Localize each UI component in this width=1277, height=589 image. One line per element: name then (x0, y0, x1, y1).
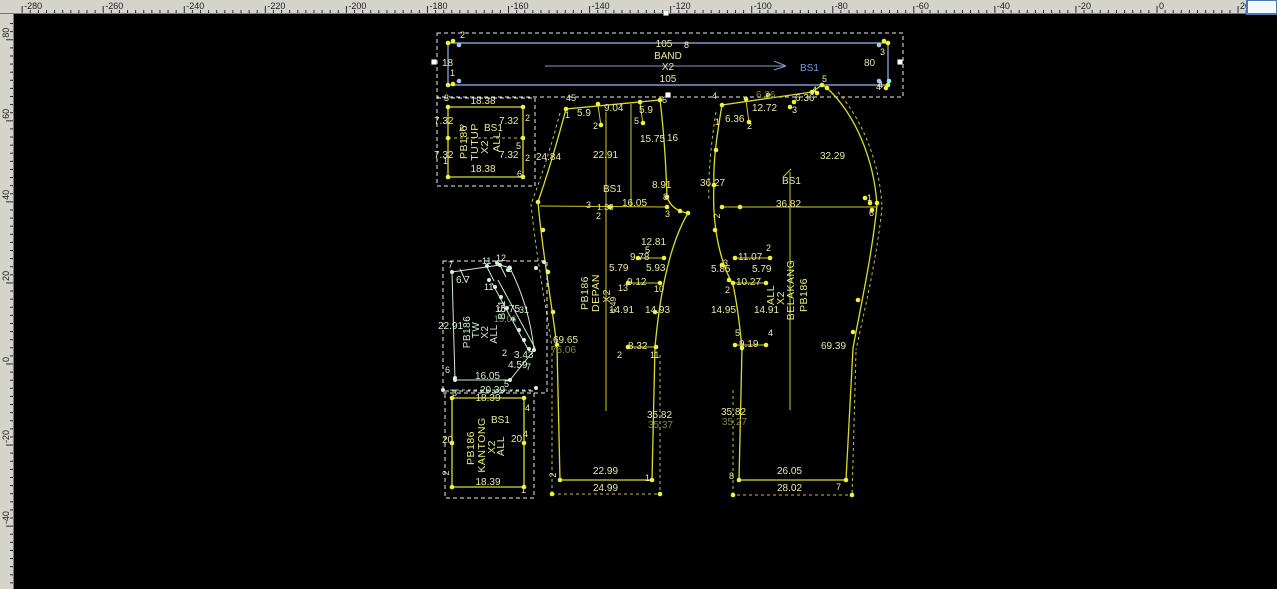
pattern-point[interactable] (733, 343, 738, 348)
pattern-point[interactable] (720, 205, 725, 210)
pattern-point[interactable] (446, 41, 451, 46)
pattern-point[interactable] (844, 478, 849, 483)
pattern-point[interactable] (457, 43, 462, 48)
pattern-point[interactable] (522, 396, 527, 401)
measurement-label: 8.32 (628, 341, 648, 352)
top-ruler-label: -160 (511, 1, 529, 11)
pattern-point[interactable] (654, 345, 659, 350)
measurement-label: 18.39 (475, 477, 500, 488)
top-ruler-label: -20 (1078, 1, 1091, 11)
pattern-point[interactable] (450, 270, 454, 274)
point-label: 2 (525, 113, 530, 123)
point-label: 6 (517, 169, 522, 179)
point-label: 4 (768, 328, 773, 338)
left-ruler-label: 40 (1, 190, 11, 200)
point-label: 8 (684, 40, 689, 50)
top-ruler-label: -260 (105, 1, 123, 11)
pattern-point[interactable] (727, 278, 732, 283)
top-ruler-label: -240 (186, 1, 204, 11)
point-label: 3 (586, 200, 591, 210)
point-label: 1 (521, 485, 526, 495)
pattern-point[interactable] (521, 136, 526, 141)
pattern-point[interactable] (638, 100, 643, 105)
measurement-label: BAND (654, 51, 682, 62)
top-ruler-label: -60 (916, 1, 929, 11)
top-ruler-label: -40 (997, 1, 1010, 11)
point-label: 4 (712, 91, 717, 101)
pattern-point[interactable] (541, 228, 546, 233)
left-ruler-label: 0 (1, 357, 11, 362)
top-ruler-label: 0 (1159, 1, 1164, 11)
pattern-point[interactable] (542, 260, 546, 264)
point-label: 3 (792, 105, 797, 115)
measurement-label: 5.79 (609, 263, 629, 274)
pattern-point[interactable] (678, 209, 683, 214)
pattern-point[interactable] (662, 256, 667, 261)
point-label: 4 (878, 80, 883, 90)
point-label: 2 (525, 153, 530, 163)
pattern-point[interactable] (451, 82, 456, 87)
point-label: 1 (715, 117, 720, 127)
left-ruler-label: -20 (1, 430, 11, 443)
measurement-label: 18.38 (470, 164, 495, 175)
pattern-point[interactable] (522, 338, 526, 342)
pattern-point[interactable] (887, 79, 892, 84)
measurement-label: 9.04 (604, 103, 624, 114)
measurement-label: 26.05 (777, 466, 802, 477)
pattern-point[interactable] (517, 328, 521, 332)
pattern-point[interactable] (446, 136, 451, 141)
measurement-label: 22.99 (593, 466, 618, 477)
pattern-point[interactable] (850, 493, 855, 498)
measurement-label: 28.02 (777, 483, 802, 494)
pattern-point[interactable] (764, 343, 769, 348)
top-ruler-label: -100 (754, 1, 772, 11)
point-label: 13 (618, 283, 628, 293)
piece-name-label: BELAKANG (785, 260, 797, 321)
top-ruler-label: -140 (592, 1, 610, 11)
point-label: 3 (880, 47, 885, 57)
pattern-point[interactable] (764, 281, 769, 286)
point-label: 1 (867, 193, 872, 203)
measurement-label: 80 (864, 58, 876, 69)
selection-handle[interactable] (666, 93, 671, 98)
measurement-label: 5.79 (752, 264, 772, 275)
point-label: 2 (712, 213, 722, 218)
pattern-point[interactable] (731, 493, 736, 498)
pattern-point[interactable] (546, 270, 551, 275)
point-label: 8 (729, 471, 734, 481)
point-label: 2 (617, 350, 622, 360)
top-ruler-label: -120 (673, 1, 691, 11)
measurement-label: 11.07 (738, 252, 763, 263)
measurement-label: BS1 (603, 184, 622, 195)
pattern-point[interactable] (441, 388, 445, 392)
pattern-point[interactable] (882, 39, 887, 44)
top-ruler-label: -180 (429, 1, 447, 11)
point-label: 3 (452, 388, 457, 398)
left-ruler-label: -40 (1, 511, 11, 524)
measurement-label: 4.59 (508, 360, 528, 371)
pattern-point[interactable] (884, 86, 889, 91)
measurement-label: 16 (667, 133, 679, 144)
measurement-label: 9.78 (630, 252, 650, 263)
measurement-label: 22.91 (438, 321, 463, 332)
point-label: 1 (645, 473, 650, 483)
point-label: 8 (663, 192, 668, 202)
pattern-point[interactable] (768, 256, 773, 261)
pattern-point[interactable] (733, 256, 738, 261)
measurement-label: 14.93 (645, 305, 670, 316)
pattern-point[interactable] (856, 298, 861, 303)
pattern-point[interactable] (658, 492, 663, 497)
measurement-label: 9.19 (739, 339, 759, 350)
measurement-label: 8.91 (652, 180, 672, 191)
measurement-label: 16.05 (475, 371, 500, 382)
pattern-point[interactable] (446, 105, 451, 110)
pattern-point[interactable] (686, 211, 691, 216)
measurement-label: 15.75 (640, 134, 665, 145)
measurement-label: BS1 (491, 415, 510, 426)
pattern-point[interactable] (713, 228, 718, 233)
point-label: 2 (593, 121, 598, 131)
measurement-label: 6.36 (725, 114, 745, 125)
point-label: 2 (747, 121, 752, 131)
left-ruler-label: 20 (1, 271, 11, 281)
point-label: 10 (654, 284, 664, 294)
measurement-label: 36.27 (700, 178, 725, 189)
point-label: 2 (507, 264, 512, 274)
piece-name-label: X2 (601, 289, 613, 303)
pattern-point[interactable] (446, 83, 451, 88)
point-label: 31 (519, 305, 529, 315)
top-ruler-label: -80 (835, 1, 848, 11)
pattern-point[interactable] (551, 310, 556, 315)
measurement-label: BS1 (497, 300, 508, 319)
pattern-point[interactable] (720, 103, 725, 108)
selection-handle[interactable] (898, 60, 903, 65)
point-label: 6 (445, 365, 450, 375)
point-label: 1 (450, 68, 455, 78)
measurement-label: 105 (660, 74, 677, 85)
point-label: 7 (836, 482, 841, 492)
point-label: 2 (548, 472, 558, 477)
pattern-point[interactable] (851, 330, 856, 335)
measurement-label: 16.05 (622, 198, 647, 209)
pattern-point[interactable] (450, 485, 455, 490)
measurement-label: 14.95 (711, 305, 736, 316)
pattern-point[interactable] (499, 295, 503, 299)
measurement-label: 105 (656, 39, 673, 50)
point-label: 1 (565, 110, 570, 120)
measurement-label: 18.38 (470, 96, 495, 107)
left-ruler-label: 80 (1, 28, 11, 38)
piece-name-label: ALL (765, 285, 777, 305)
measurement-label: 75.06 (551, 345, 576, 356)
pattern-point[interactable] (534, 266, 538, 270)
point-label: 4 (523, 429, 528, 439)
pattern-point[interactable] (558, 478, 563, 483)
measurement-label: BS1 (782, 176, 801, 187)
point-label: 5 (634, 116, 639, 126)
point-label: 7 (448, 260, 453, 270)
piece-name-label: X2 (479, 140, 491, 154)
point-label: 2 (441, 470, 451, 475)
point-label: 3 (665, 209, 670, 219)
measurement-label: 20 (511, 434, 523, 445)
pattern-canvas[interactable]: -280-260-240-220-200-180-160-140-120-100… (0, 0, 1277, 589)
pattern-point[interactable] (875, 201, 880, 206)
measurement-label: 5.85 (711, 264, 731, 275)
piece-name-label: PB186 (798, 278, 810, 312)
pattern-point[interactable] (714, 148, 719, 153)
pattern-point[interactable] (599, 123, 604, 128)
measurement-label: 24.84 (536, 152, 561, 163)
pattern-point[interactable] (534, 386, 538, 390)
measurement-label: X2 (662, 62, 675, 73)
pattern-point[interactable] (738, 205, 743, 210)
pattern-point[interactable] (825, 86, 830, 91)
piece-name-label: ALL (491, 132, 503, 152)
point-label: 6 (869, 208, 874, 218)
point-label: 4 (812, 85, 817, 95)
top-ruler-label: -200 (348, 1, 366, 11)
measurement-label: 22.91 (593, 150, 618, 161)
measurement-label: BS1 (800, 63, 819, 74)
measurement-label: 12.72 (752, 103, 777, 114)
point-label: 7 (526, 362, 531, 372)
pattern-point[interactable] (536, 200, 541, 205)
top-ruler-label: -280 (24, 1, 42, 11)
point-label: 2 (596, 211, 601, 221)
measurement-label: 5.9 (577, 108, 591, 119)
piece-name-label: ALL (489, 324, 500, 343)
pattern-point[interactable] (457, 79, 462, 84)
pattern-point[interactable] (886, 41, 891, 46)
pattern-point[interactable] (650, 478, 655, 483)
pattern-point[interactable] (521, 105, 526, 110)
piece-name-label: ALL (495, 436, 507, 456)
pattern-point[interactable] (641, 121, 646, 126)
pattern-point[interactable] (731, 281, 736, 286)
pattern-point[interactable] (446, 175, 451, 180)
pattern-point[interactable] (493, 285, 497, 289)
point-label: 2 (460, 30, 465, 40)
top-ruler-label: -220 (267, 1, 285, 11)
point-label: 2 (766, 243, 771, 253)
point-label: 4 (525, 403, 530, 413)
measurement-label: 20 (442, 435, 454, 446)
point-label: 11 (650, 350, 659, 360)
point-label: 11 (484, 282, 493, 292)
point-label: 5 (822, 74, 827, 84)
measurement-label: 10.27 (736, 277, 761, 288)
point-label: 12 (496, 253, 506, 263)
left-ruler-label: 60 (1, 109, 11, 119)
measurement-label: 14.91 (754, 305, 779, 316)
measurement-label: 69.39 (821, 341, 846, 352)
point-label: 45 (566, 93, 576, 103)
measurement-label: 32.29 (820, 151, 845, 162)
measurement-label: 6.36 (756, 90, 776, 101)
measurement-label: 14.91 (609, 305, 634, 316)
measurement-label: 35.27 (722, 417, 747, 428)
measurement-label: 7.32 (434, 116, 454, 127)
measurement-label: 18.39 (475, 393, 500, 404)
measurement-label: 9.12 (627, 277, 647, 288)
selection-handle[interactable] (432, 60, 437, 65)
measurement-label: 5.9 (639, 105, 653, 116)
pattern-point[interactable] (451, 39, 456, 44)
pattern-point[interactable] (737, 478, 742, 483)
pattern-point[interactable] (522, 441, 527, 446)
selection-handle[interactable] (664, 11, 669, 16)
point-label: 1 (443, 156, 448, 166)
measurement-label: 36.82 (776, 199, 801, 210)
point-label: 5 (735, 328, 740, 338)
measurement-label: 35.37 (648, 420, 673, 431)
point-label: 2 (725, 285, 730, 295)
corner-widget[interactable] (1247, 0, 1277, 14)
measurement-label: 24.99 (593, 483, 618, 494)
point-label: 11 (482, 256, 491, 266)
point-label: 2 (502, 348, 507, 358)
pattern-cad-screen: -280-260-240-220-200-180-160-140-120-100… (0, 0, 1277, 589)
pattern-point[interactable] (550, 492, 555, 497)
point-label: 3 (444, 93, 449, 103)
measurement-label: 5.93 (646, 263, 666, 274)
pattern-point[interactable] (453, 376, 457, 380)
pattern-point[interactable] (744, 97, 749, 102)
measurement-label: 6.7 (456, 275, 470, 286)
pattern-point[interactable] (596, 102, 601, 107)
